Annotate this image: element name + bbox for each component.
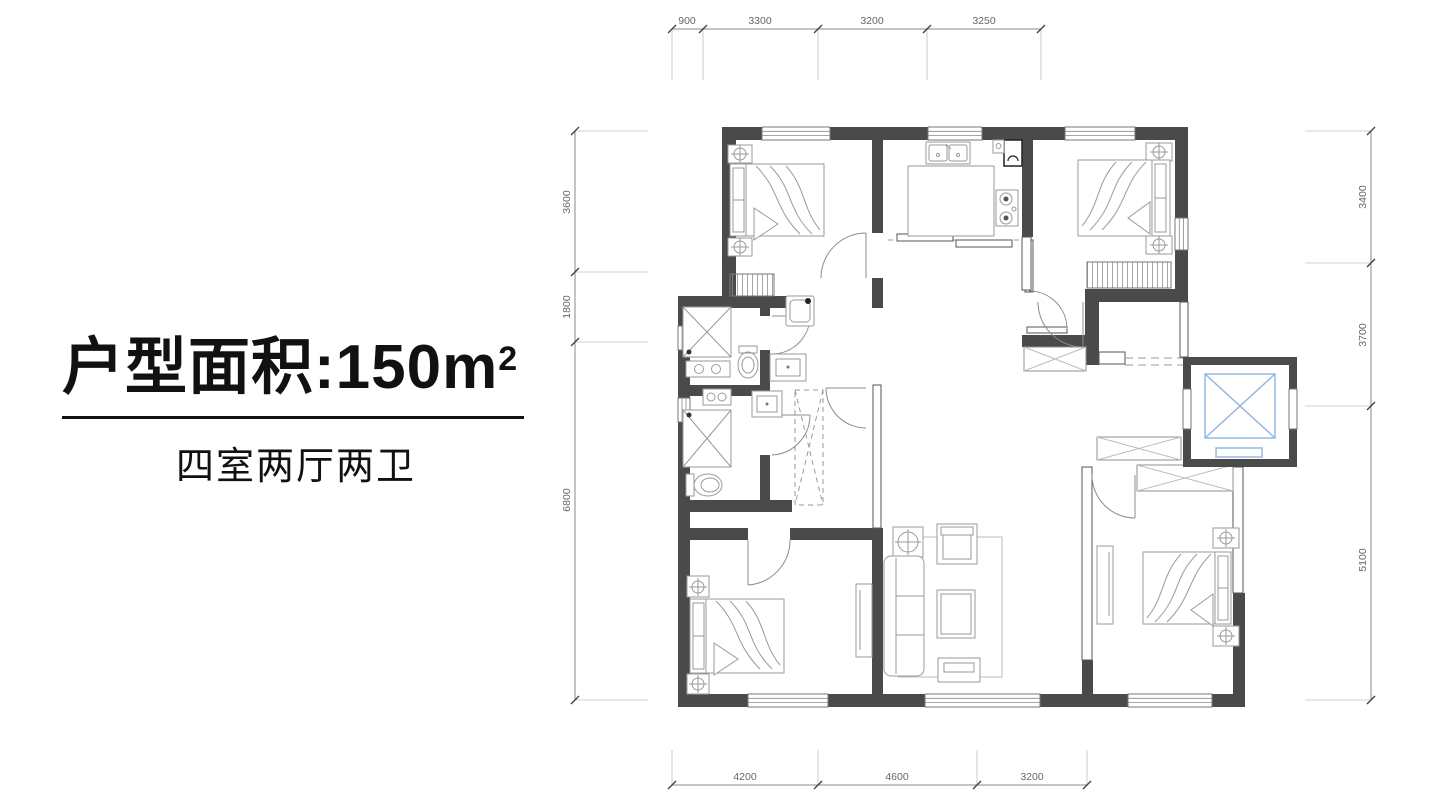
- water-heater: [1004, 140, 1022, 166]
- dim-right-1: 3400: [1357, 185, 1369, 209]
- furniture-bedroom3: [687, 576, 872, 694]
- wardrobe-bedroom4: [1137, 465, 1233, 491]
- window-bedroom2-side: [1175, 218, 1188, 250]
- dim-right-3: 5100: [1357, 548, 1369, 572]
- window-bedroom3: [748, 694, 828, 707]
- toilet: [694, 474, 722, 496]
- dim-top-2: 3300: [748, 15, 772, 27]
- dim-right-2: 3700: [1357, 323, 1369, 347]
- door-bedroom1: [821, 233, 866, 278]
- toilet-tank: [686, 474, 694, 496]
- dim-top-1: 900: [678, 15, 696, 27]
- furniture-bedroom1: [728, 145, 824, 296]
- dim-bottom-3: 3200: [1020, 771, 1044, 783]
- dim-bottom-2: 4600: [885, 771, 909, 783]
- sofa: [884, 556, 924, 676]
- wardrobe: [1087, 262, 1171, 288]
- elevator: [1183, 361, 1297, 463]
- window-bedroom4: [1128, 694, 1212, 707]
- dimension-top: 900 3300 3200 3250: [668, 15, 1045, 80]
- shower-head: [687, 350, 692, 355]
- radiator: [730, 274, 774, 296]
- floorplan-drawing: 900 3300 3200 3250 4200 4600 3200 3600 1…: [0, 0, 1440, 809]
- desk: [856, 584, 872, 657]
- furniture-bath1: [683, 296, 814, 381]
- dimension-bottom: 4200 4600 3200: [668, 750, 1091, 789]
- furniture-bedroom2: [1078, 143, 1172, 288]
- window-living: [925, 694, 1040, 707]
- kitchen-counter: [908, 166, 994, 236]
- furniture-kitchen: [908, 140, 1022, 236]
- kitchen-fixture: [993, 140, 1004, 153]
- hall-duct: [1097, 437, 1181, 460]
- coffee-table: [937, 590, 975, 638]
- floorplan-page: 户型面积:150m2 四室两厅两卫 900 3300 3200 3250 420…: [0, 0, 1440, 809]
- stove: [996, 190, 1018, 226]
- shower-head: [687, 413, 692, 418]
- door-bedroom3: [748, 540, 790, 585]
- door-bath2: [772, 415, 810, 455]
- window-bedroom1: [762, 127, 830, 140]
- door-hall: [826, 388, 866, 428]
- furniture-living: [884, 524, 1002, 682]
- toilet: [738, 352, 758, 378]
- door-entry: [1027, 291, 1067, 333]
- entry-cabinet: [1024, 347, 1086, 371]
- dimension-right: 3400 3700 5100: [1305, 127, 1375, 704]
- window-bedroom2: [1065, 127, 1135, 140]
- sink-counter: [686, 361, 730, 377]
- desk: [1097, 546, 1113, 624]
- door-bedroom4: [1092, 475, 1135, 518]
- dim-left-3: 6800: [561, 488, 573, 512]
- dim-left-1: 3600: [561, 190, 573, 214]
- dimension-left: 3600 1800 6800: [561, 127, 648, 704]
- closet-dashed: [795, 390, 823, 505]
- projection-line: [1125, 358, 1183, 365]
- furniture-bedroom4: [1097, 528, 1239, 646]
- dim-bottom-1: 4200: [733, 771, 757, 783]
- window-kitchen: [928, 127, 982, 140]
- dim-left-2: 1800: [561, 295, 573, 319]
- dim-top-3: 3200: [860, 15, 884, 27]
- dim-top-4: 3250: [972, 15, 996, 27]
